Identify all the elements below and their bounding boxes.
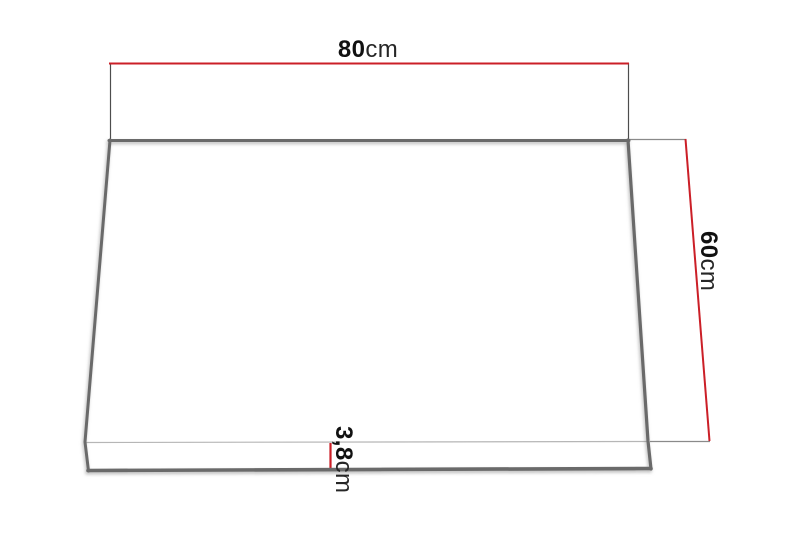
width-unit: cm <box>365 36 398 63</box>
panel-drawing <box>0 0 800 533</box>
thickness-unit: cm <box>330 461 357 494</box>
dimension-diagram: 80cm 60cm 3,8cm <box>0 0 800 533</box>
depth-unit: cm <box>695 259 722 292</box>
depth-value: 60 <box>695 231 722 259</box>
panel-front-face <box>85 441 651 471</box>
thickness-dimension-label: 3,8cm <box>331 426 355 493</box>
thickness-value: 3,8 <box>330 426 357 461</box>
width-value: 80 <box>338 36 366 63</box>
width-dimension-label: 80cm <box>306 38 430 62</box>
depth-dimension-label: 60cm <box>696 231 720 291</box>
panel-top-face <box>85 140 648 442</box>
panel-bottom-edge <box>88 469 651 471</box>
